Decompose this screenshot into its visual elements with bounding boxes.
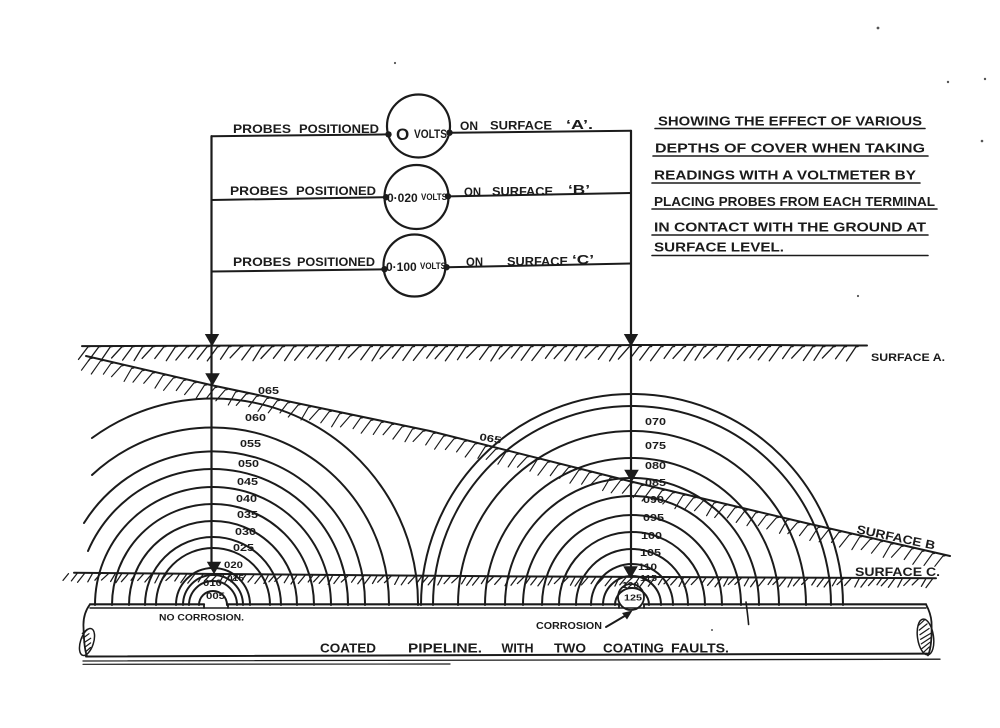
svg-text:005: 005 — [206, 591, 225, 601]
svg-text:CORROSION: CORROSION — [536, 620, 602, 632]
svg-text:NO CORROSION.: NO CORROSION. — [159, 613, 244, 624]
svg-text:ON: ON — [460, 121, 478, 133]
svg-text:ON: ON — [466, 257, 483, 269]
svg-text:COATED: COATED — [320, 641, 376, 656]
svg-text:110: 110 — [638, 562, 657, 572]
svg-text:045: 045 — [237, 477, 259, 488]
svg-text:060: 060 — [245, 413, 267, 424]
svg-text:085: 085 — [645, 478, 667, 489]
svg-text:030: 030 — [235, 527, 257, 538]
svg-text:015: 015 — [227, 574, 245, 583]
svg-text:DEPTHS OF COVER WHEN TAKING: DEPTHS OF COVER WHEN TAKING — [655, 142, 925, 156]
svg-text:VOLTS: VOLTS — [420, 261, 446, 272]
svg-text:PROBES: PROBES — [233, 257, 291, 269]
svg-text:115: 115 — [640, 574, 658, 583]
svg-text:035: 035 — [237, 510, 259, 521]
svg-text:090: 090 — [643, 495, 665, 506]
svg-text:POSITIONED: POSITIONED — [299, 124, 379, 136]
svg-text:040: 040 — [236, 494, 258, 505]
svg-text:VOLTS: VOLTS — [414, 129, 447, 141]
svg-text:070: 070 — [645, 417, 667, 428]
svg-text:O: O — [396, 125, 409, 144]
svg-text:FAULTS.: FAULTS. — [671, 641, 729, 656]
svg-text:IN CONTACT WITH THE GROUND AT: IN CONTACT WITH THE GROUND AT — [654, 221, 926, 235]
svg-text:105: 105 — [640, 548, 662, 559]
svg-text:SURFACE A.: SURFACE A. — [871, 352, 945, 364]
svg-text:080: 080 — [645, 461, 667, 472]
svg-text:SHOWING THE EFFECT OF VARIOUS: SHOWING THE EFFECT OF VARIOUS — [658, 115, 922, 129]
svg-text:PIPELINE.: PIPELINE. — [408, 641, 482, 656]
svg-text:055: 055 — [240, 439, 262, 450]
svg-text:POSITIONED: POSITIONED — [296, 186, 376, 198]
svg-text:125: 125 — [624, 593, 642, 603]
svg-text:0·020: 0·020 — [387, 191, 418, 205]
svg-text:PROBES: PROBES — [233, 124, 291, 136]
svg-text:‘C’: ‘C’ — [572, 252, 594, 267]
svg-text:SURFACE LEVEL.: SURFACE LEVEL. — [654, 241, 784, 255]
svg-text:065: 065 — [258, 386, 280, 397]
svg-text:POSITIONED: POSITIONED — [297, 257, 375, 269]
svg-text:‘A’.: ‘A’. — [566, 117, 593, 132]
svg-text:READINGS WITH A VOLTMETER BY: READINGS WITH A VOLTMETER BY — [654, 169, 917, 183]
svg-text:‘B’: ‘B’ — [568, 182, 590, 197]
svg-text:025: 025 — [233, 543, 255, 554]
svg-text:010: 010 — [203, 578, 222, 588]
svg-text:VOLTS: VOLTS — [421, 192, 447, 202]
svg-text:120: 120 — [622, 581, 640, 590]
svg-text:ON: ON — [464, 187, 481, 199]
svg-text:SURFACE C.: SURFACE C. — [855, 565, 940, 579]
svg-text:PLACING PROBES FROM EACH TERMI: PLACING PROBES FROM EACH TERMINAL — [654, 195, 935, 209]
svg-text:050: 050 — [238, 459, 260, 470]
svg-text:0·100: 0·100 — [386, 260, 417, 274]
svg-text:020: 020 — [224, 560, 243, 570]
svg-text:TWO: TWO — [554, 641, 586, 656]
svg-text:SURFACE: SURFACE — [490, 121, 552, 133]
svg-text:100: 100 — [641, 531, 663, 542]
svg-text:SURFACE: SURFACE — [492, 187, 553, 199]
svg-text:075: 075 — [645, 441, 667, 452]
svg-text:COATING: COATING — [603, 641, 664, 656]
svg-text:PROBES: PROBES — [230, 186, 288, 198]
svg-text:095: 095 — [643, 513, 665, 524]
svg-text:WITH: WITH — [502, 641, 534, 656]
svg-text:SURFACE: SURFACE — [507, 257, 568, 269]
